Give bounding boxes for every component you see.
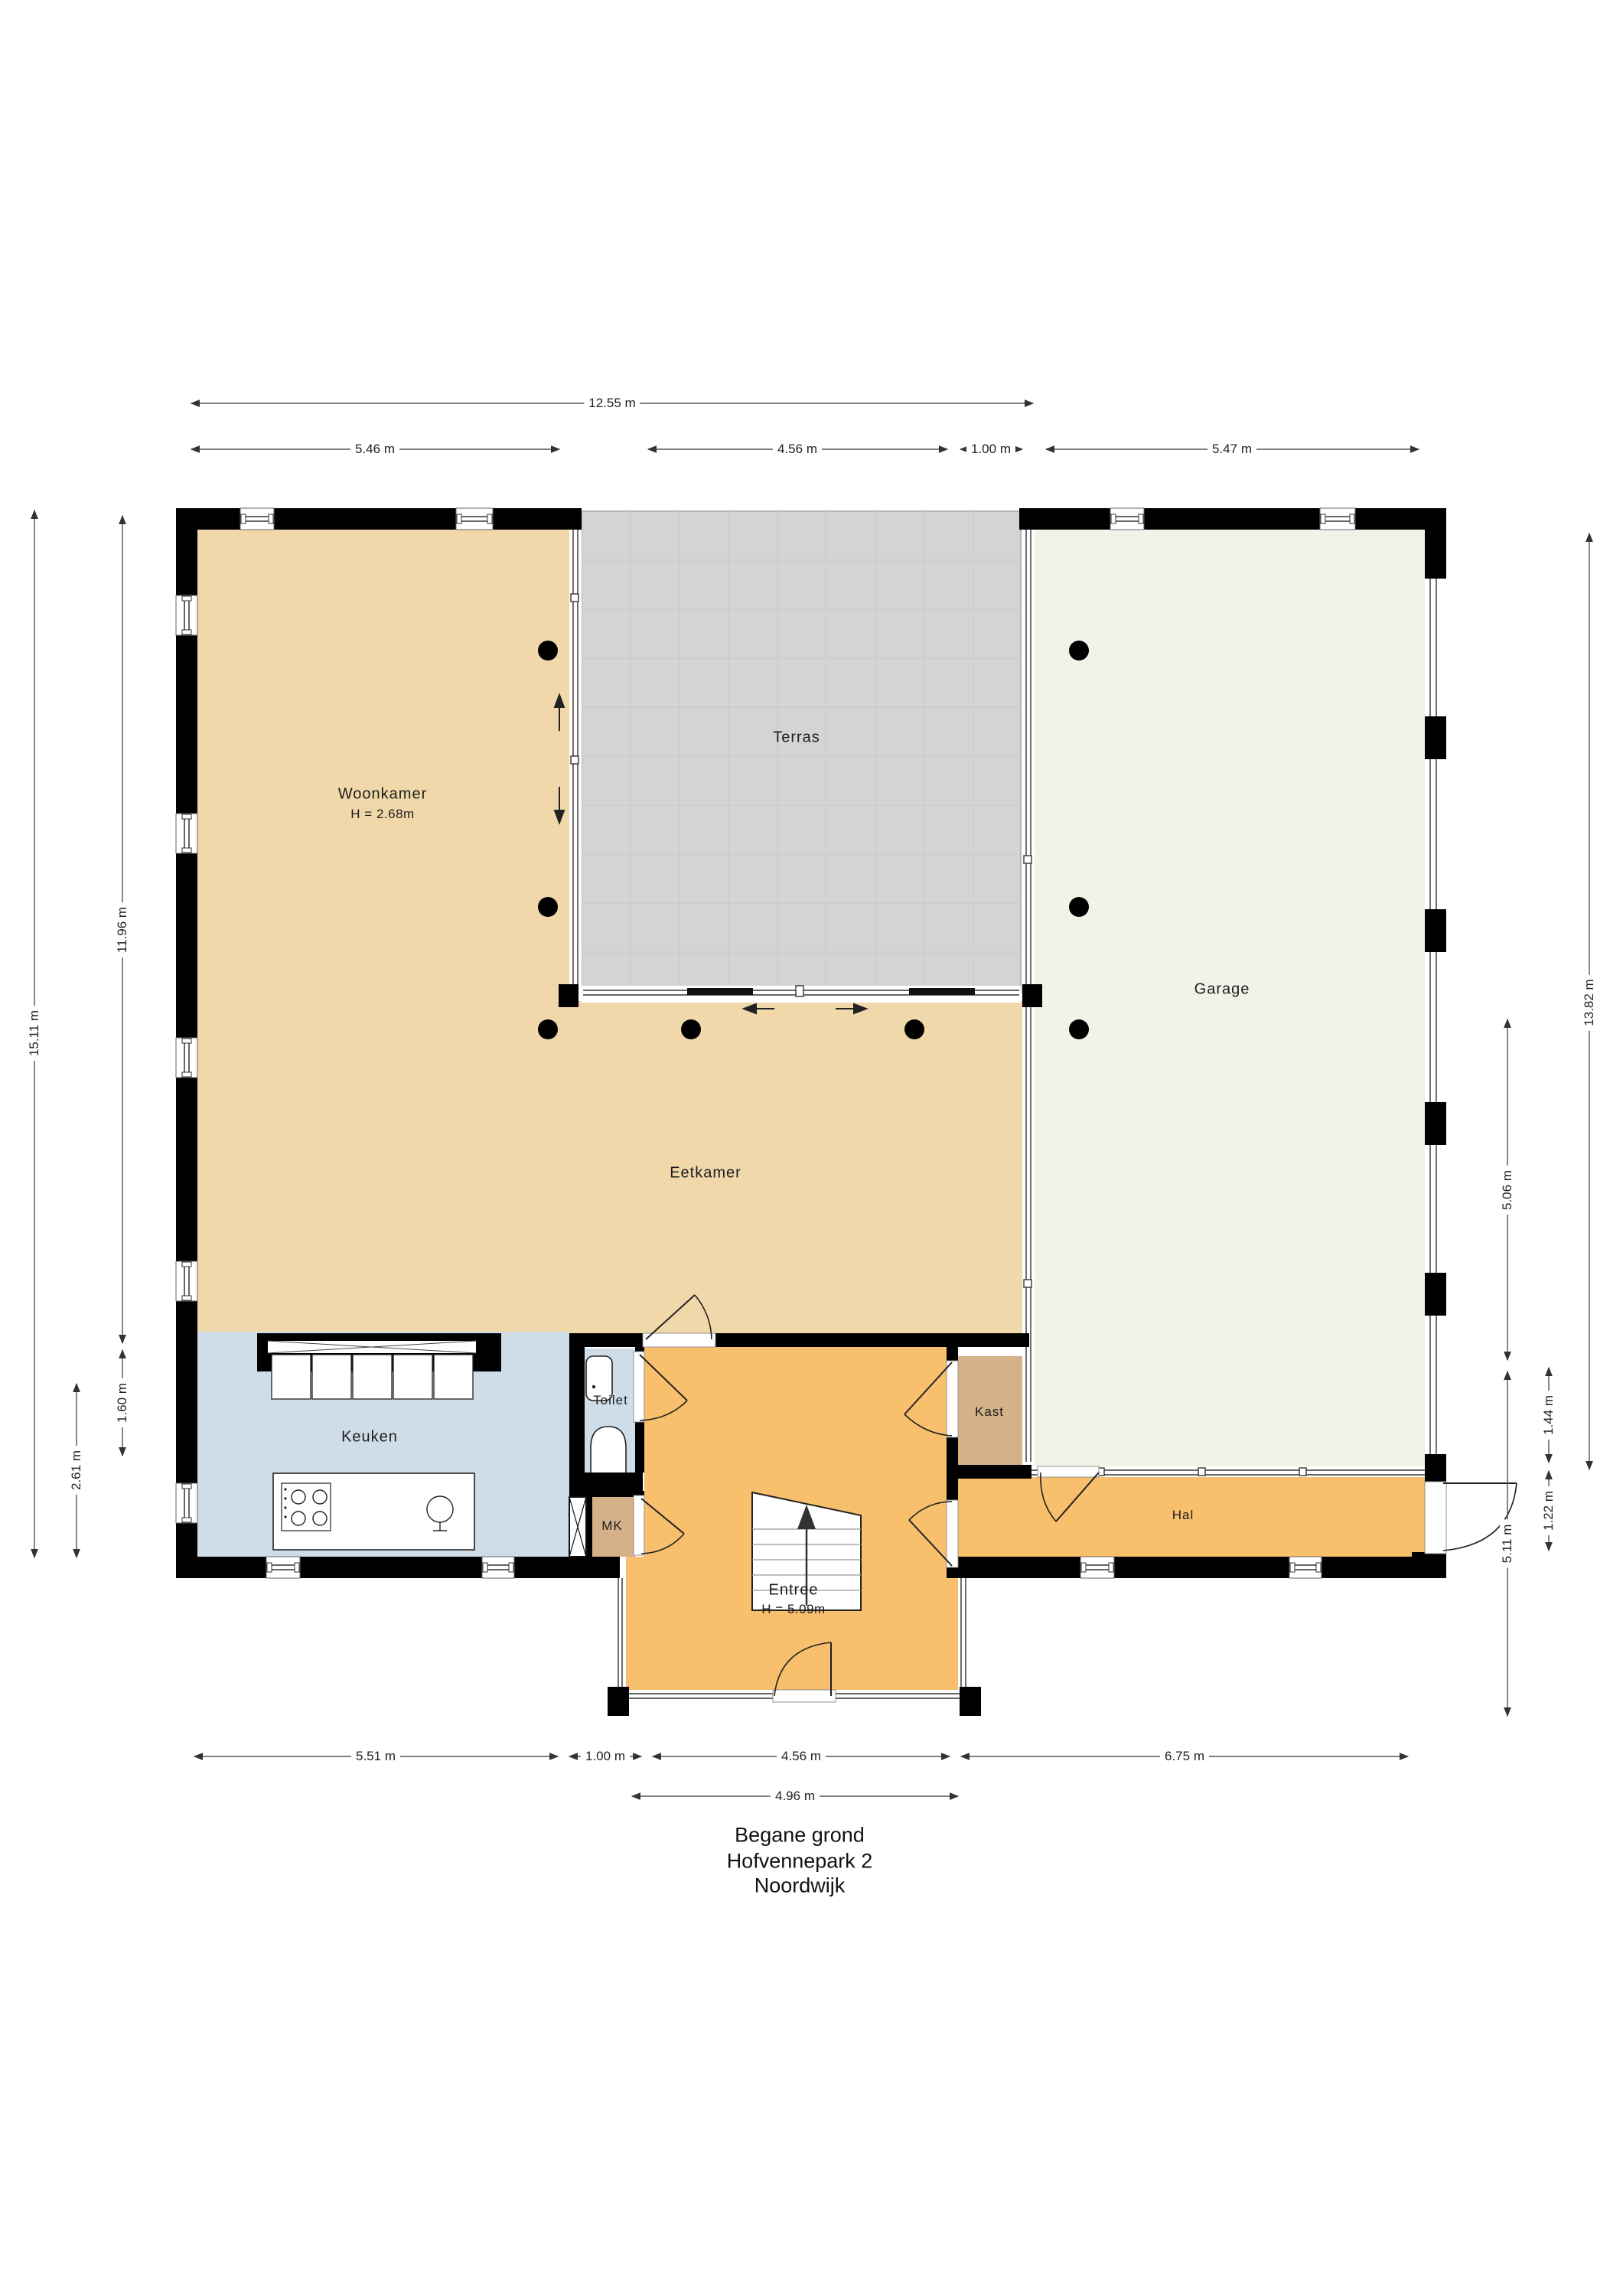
window — [482, 1557, 514, 1578]
dim-top-total: 12.55 m — [584, 396, 640, 411]
kitchen-sink — [427, 1496, 453, 1522]
dim-left-keuken: 2.61 m — [69, 1446, 84, 1495]
room-label-eetkamer: Eetkamer — [670, 1165, 741, 1182]
glass-wall-garage-east — [1426, 511, 1443, 1480]
dim-bottom-hal: 6.75 m — [1160, 1749, 1209, 1764]
window — [1110, 508, 1144, 530]
dim-right-garage: 5.06 m — [1500, 1166, 1515, 1215]
window — [1080, 1557, 1114, 1578]
plan-title-address: Hofvennepark 2 — [727, 1850, 873, 1874]
eetkamer-floor — [197, 1001, 1025, 1333]
dim-bottom-strip: 1.00 m — [581, 1749, 630, 1764]
room-height-woonkamer: H = 2.68m — [350, 807, 414, 822]
window — [176, 1038, 197, 1078]
window — [266, 1557, 300, 1578]
room-height-entree: H = 5.09m — [761, 1602, 825, 1617]
window — [240, 508, 274, 530]
dim-top-strip: 1.00 m — [966, 442, 1015, 457]
window — [1320, 508, 1355, 530]
window — [176, 1261, 197, 1301]
room-label-keuken: Keuken — [341, 1429, 398, 1446]
window — [456, 508, 493, 530]
room-label-toilet: Toilet — [593, 1393, 628, 1408]
dim-right-total: 13.82 m — [1582, 974, 1597, 1030]
dim-left-woonkamer: 11.96 m — [115, 902, 130, 957]
plan-title-floor: Begane grond — [735, 1824, 865, 1848]
dim-top-terras: 4.56 m — [773, 442, 822, 457]
glass-wall-entree-west — [615, 1578, 626, 1701]
window — [176, 595, 197, 635]
floorplan-page: Woonkamer H = 2.68m Terras Garage Eetkam… — [0, 0, 1623, 2296]
room-label-terras: Terras — [773, 729, 820, 747]
window — [1289, 1557, 1322, 1578]
room-label-hal: Hal — [1172, 1508, 1194, 1523]
room-label-kast: Kast — [975, 1404, 1004, 1420]
room-label-mk: MK — [601, 1518, 623, 1534]
dim-right-hal: 1.22 m — [1541, 1486, 1556, 1535]
dim-top-garage: 5.47 m — [1207, 442, 1256, 457]
dim-right-entree: 5.11 m — [1500, 1520, 1515, 1568]
floorplan-drawing — [0, 0, 1623, 2296]
dim-right-kast: 1.44 m — [1541, 1391, 1556, 1440]
wc-bowl — [591, 1427, 626, 1473]
room-label-garage: Garage — [1194, 981, 1250, 999]
stove — [282, 1483, 331, 1531]
window — [176, 1483, 197, 1523]
kitchen-island — [273, 1473, 474, 1550]
room-label-entree: Entree — [769, 1582, 819, 1600]
dim-top-woonkamer: 5.46 m — [350, 442, 399, 457]
sliding-wall-woonkamer-terras — [569, 508, 582, 992]
glass-wall-entree-east — [958, 1578, 969, 1701]
room-label-woonkamer: Woonkamer — [338, 786, 427, 804]
garage-floor — [1031, 530, 1425, 1473]
kitchen-counter — [257, 1333, 501, 1399]
dim-left-total: 15.11 m — [27, 1006, 42, 1061]
window — [176, 814, 197, 853]
dim-bottom-keuken: 5.51 m — [351, 1749, 400, 1764]
shaft — [569, 1497, 586, 1557]
dim-bottom-entree-inner: 4.96 m — [771, 1789, 820, 1804]
dim-bottom-entree: 4.56 m — [777, 1749, 826, 1764]
dim-left-toilet: 1.60 m — [115, 1378, 130, 1427]
terras-floor — [582, 511, 1021, 992]
plan-title-city: Noordwijk — [754, 1874, 846, 1898]
